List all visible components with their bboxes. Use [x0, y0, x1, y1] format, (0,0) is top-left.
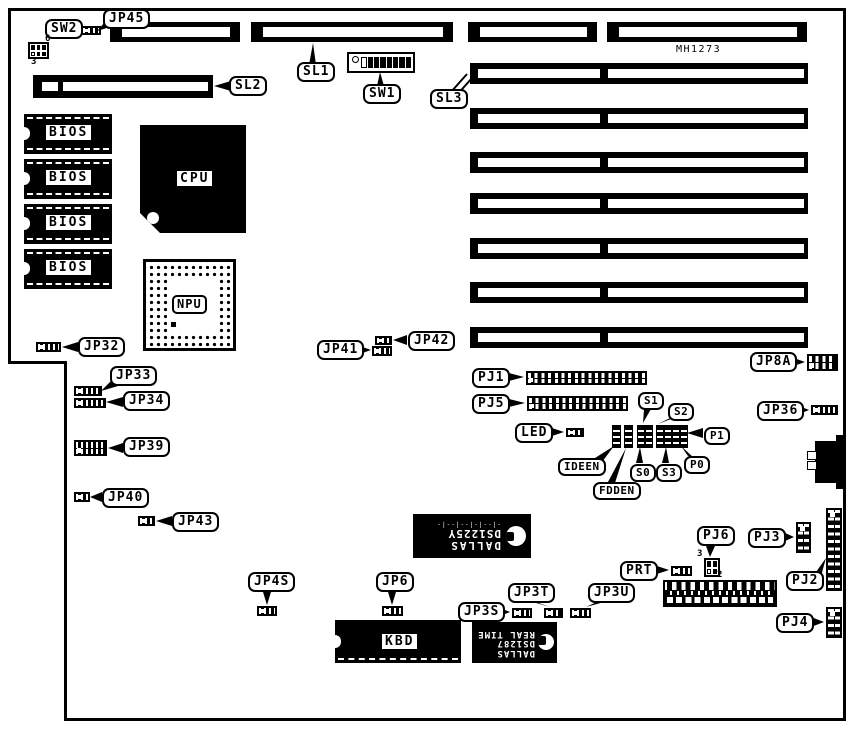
- callout-jp32: JP32: [78, 337, 125, 357]
- callout-jp8a: JP8A: [750, 352, 797, 372]
- callout-p1: P1: [704, 427, 730, 445]
- pj6-pin3-number: 3: [697, 550, 702, 559]
- callout-jp41: JP41: [317, 340, 364, 360]
- callout-jp42: JP42: [408, 331, 455, 351]
- callout-ideen: IDEEN: [558, 458, 606, 476]
- sw2-pin6-number: 6: [45, 35, 50, 44]
- callout-s0: S0: [630, 464, 656, 482]
- callout-jp3t: JP3T: [508, 583, 555, 603]
- callout-jp3s: JP3S: [458, 602, 505, 622]
- callout-p0: P0: [684, 456, 710, 474]
- pj6-pin2-number: 2: [717, 571, 722, 580]
- callout-jp39: JP39: [123, 437, 170, 457]
- callout-sw1: SW1: [363, 84, 401, 104]
- callout-pj3: PJ3: [748, 528, 786, 548]
- callout-sl1: SL1: [297, 62, 335, 82]
- callout-jp34: JP34: [123, 391, 170, 411]
- callout-prt: PRT: [620, 561, 658, 581]
- callout-s2: S2: [668, 403, 694, 421]
- callout-jp4s: JP4S: [248, 572, 295, 592]
- callout-jp6: JP6: [376, 572, 414, 592]
- board-outline-and-pointers: [0, 0, 851, 730]
- callout-s1: S1: [638, 392, 664, 410]
- callout-sl3: SL3: [430, 89, 468, 109]
- callout-fdden: FDDEN: [593, 482, 641, 500]
- callout-pj6: PJ6: [697, 526, 735, 546]
- callout-pj4: PJ4: [776, 613, 814, 633]
- callout-jp45: JP45: [103, 9, 150, 29]
- callout-pj5: PJ5: [472, 394, 510, 414]
- sw2-pin3-number: 3: [31, 58, 36, 67]
- callout-pj1: PJ1: [472, 368, 510, 388]
- callout-led: LED: [515, 423, 553, 443]
- board-outline: [10, 10, 845, 720]
- callout-jp33: JP33: [110, 366, 157, 386]
- callout-jp36: JP36: [757, 401, 804, 421]
- callout-pj2: PJ2: [786, 571, 824, 591]
- callout-s3: S3: [656, 464, 682, 482]
- callout-sw2: SW2: [45, 19, 83, 39]
- callout-sl2: SL2: [229, 76, 267, 96]
- motherboard-diagram: MH1273 BIOS BIOS BIOS BIOS CPU NPU: [0, 0, 851, 730]
- callout-jp3u: JP3U: [588, 583, 635, 603]
- callout-jp43: JP43: [172, 512, 219, 532]
- callout-jp40: JP40: [102, 488, 149, 508]
